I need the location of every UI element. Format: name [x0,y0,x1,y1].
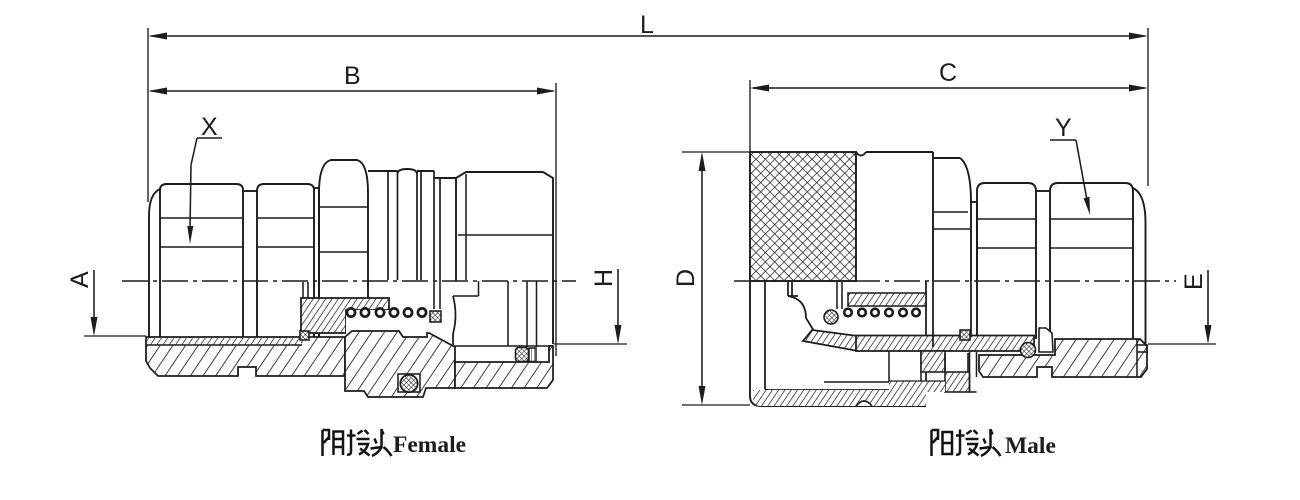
svg-text:E: E [1180,273,1208,290]
svg-text:Male: Male [1005,433,1056,459]
svg-text:Y: Y [1055,114,1072,142]
svg-text:L: L [640,11,654,39]
svg-text:H: H [590,269,618,287]
svg-text:Female: Female [393,432,466,458]
svg-text:D: D [672,269,700,287]
svg-text:B: B [344,62,361,90]
svg-text:C: C [939,59,957,87]
svg-text:X: X [201,113,218,141]
svg-text:A: A [66,271,94,288]
